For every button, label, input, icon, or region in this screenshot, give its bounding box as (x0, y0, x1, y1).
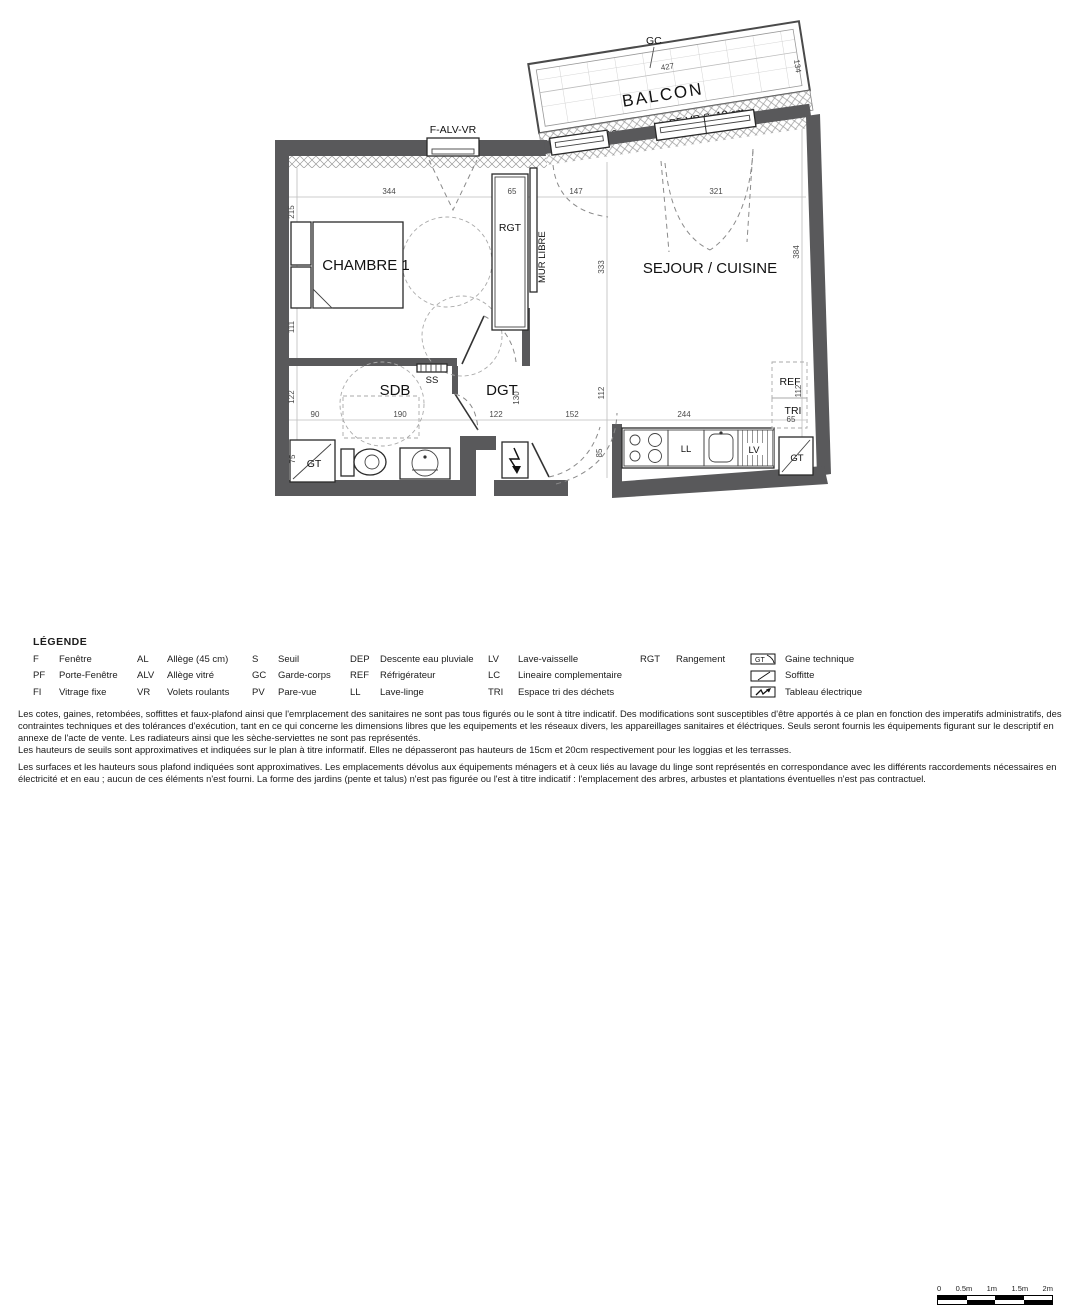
label-rgt: RGT (499, 222, 522, 234)
svg-text:122: 122 (287, 390, 296, 404)
towel-rail-ss (417, 364, 447, 372)
legend-abbr: S (252, 654, 278, 665)
disclaimer-paragraph-1: Les cotes, gaines, retombées, soffittes … (18, 708, 1072, 744)
window-f-alv-vr (427, 138, 479, 210)
svg-text:384: 384 (792, 245, 801, 259)
legend-abbr: FI (33, 687, 59, 698)
legend-item: REFRéfrigérateur (350, 668, 473, 685)
legend-label: Volets roulants (167, 687, 229, 698)
legend-label: Descente eau pluviale (380, 654, 473, 665)
sdb-sink (400, 448, 450, 479)
svg-text:111: 111 (287, 320, 296, 333)
room-label-sejour: SEJOUR / CUISINE (643, 260, 777, 277)
floorplan-page: { "plan": { "rooms": { "balcon": "BALCON… (0, 0, 1085, 800)
floor-plan: 427 134 BALCON PF-VR S=18 cm PF-VR S=18 … (0, 0, 1085, 634)
legend-abbr: LL (350, 687, 380, 698)
svg-text:112: 112 (794, 384, 803, 397)
svg-text:147: 147 (569, 187, 583, 196)
label-ll: LL (681, 444, 692, 455)
legend-item: ALVAllège vitré (137, 668, 229, 685)
legend-abbr: ALV (137, 670, 167, 681)
legend-column-symbols: GT Gaine technique Soffitte Tableau élec… (750, 651, 862, 701)
svg-text:333: 333 (597, 260, 606, 274)
scale-bar: 0 0.5m 1m 1.5m 2m (937, 1284, 1053, 1305)
gaine-technique-icon: GT (750, 653, 776, 665)
label-gt-right: GT (790, 453, 803, 464)
legend-label: Allège vitré (167, 670, 214, 681)
svg-text:321: 321 (709, 187, 723, 196)
svg-text:152: 152 (565, 410, 579, 419)
label-ss: SS (426, 375, 439, 386)
legend-abbr: GC (252, 670, 278, 681)
legend-label: Gaine technique (785, 654, 854, 665)
toilet (341, 449, 386, 476)
legend-label: Allège (45 cm) (167, 654, 228, 665)
legend-abbr: TRI (488, 687, 518, 698)
label-mur-libre: MUR LIBRE (537, 231, 548, 283)
legend-item: FFenêtre (33, 651, 118, 668)
label-gc: GC (646, 35, 662, 47)
legend-label: Fenêtre (59, 654, 92, 665)
label-f-alv-vr: F-ALV-VR (430, 124, 477, 136)
disclaimer-paragraph-3: Les surfaces et les hauteurs sous plafon… (18, 761, 1072, 785)
legend-abbr: PF (33, 670, 59, 681)
legend-label: Garde-corps (278, 670, 331, 681)
legend-abbr: LC (488, 670, 518, 681)
disclaimer: Les cotes, gaines, retombées, soffittes … (18, 708, 1072, 785)
soffitte-icon (750, 670, 776, 682)
legend-label: Réfrigérateur (380, 670, 435, 681)
legend-column-4: DEPDescente eau pluviale REFRéfrigérateu… (350, 651, 473, 701)
label-gt-left: GT (307, 458, 322, 470)
legend-column-2: ALAllège (45 cm) ALVAllège vitré VRVolet… (137, 651, 229, 701)
tableau-electrique-icon (750, 686, 776, 698)
legend-label: Rangement (676, 654, 725, 665)
electrical-panel (502, 442, 528, 478)
scale-tick: 1.5m (1011, 1284, 1028, 1293)
scale-bar-graphic (937, 1295, 1053, 1305)
legend-abbr: PV (252, 687, 278, 698)
legend-item: GCGarde-corps (252, 668, 331, 685)
legend: LÉGENDE FFenêtre PFPorte-Fenêtre FIVitra… (0, 636, 1085, 706)
legend-item-tableau-electrique: Tableau électrique (750, 684, 862, 701)
scale-tick: 0.5m (956, 1284, 973, 1293)
legend-abbr: LV (488, 654, 518, 665)
legend-abbr: REF (350, 670, 380, 681)
legend-item: LLLave-linge (350, 684, 473, 701)
svg-text:190: 190 (393, 410, 407, 419)
legend-column-1: FFenêtre PFPorte-Fenêtre FIVitrage fixe (33, 651, 118, 701)
legend-label: Vitrage fixe (59, 687, 106, 698)
svg-text:75: 75 (288, 454, 297, 463)
legend-abbr: VR (137, 687, 167, 698)
legend-label: Seuil (278, 654, 299, 665)
svg-text:85: 85 (595, 448, 604, 457)
svg-text:122: 122 (489, 410, 503, 419)
svg-text:90: 90 (311, 410, 320, 419)
legend-item: LCLineaire complementaire (488, 668, 622, 685)
legend-title: LÉGENDE (33, 636, 87, 648)
legend-item-gaine-technique: GT Gaine technique (750, 651, 862, 668)
legend-label: Lineaire complementaire (518, 670, 622, 681)
shower-outline (343, 396, 419, 438)
legend-abbr: AL (137, 654, 167, 665)
svg-text:65: 65 (787, 415, 796, 424)
legend-label: Tableau électrique (785, 687, 862, 698)
legend-label: Lave-linge (380, 687, 424, 698)
svg-text:130: 130 (512, 391, 521, 405)
disclaimer-paragraph-2: Les hauteurs de seuils sont approximativ… (18, 744, 1072, 756)
svg-text:65: 65 (508, 187, 517, 196)
legend-item-soffitte: Soffitte (750, 668, 862, 685)
legend-column-3: SSeuil GCGarde-corps PVPare-vue (252, 651, 331, 701)
legend-label: Espace tri des déchets (518, 687, 614, 698)
legend-label: Lave-vaisselle (518, 654, 578, 665)
legend-label: Soffitte (785, 670, 814, 681)
room-label-chambre: CHAMBRE 1 (322, 257, 410, 274)
svg-text:244: 244 (677, 410, 691, 419)
legend-abbr: RGT (640, 654, 676, 665)
legend-item: DEPDescente eau pluviale (350, 651, 473, 668)
legend-item: FIVitrage fixe (33, 684, 118, 701)
rgt-closet (492, 174, 528, 330)
legend-column-5: LVLave-vaisselle LCLineaire complementai… (488, 651, 622, 701)
legend-column-6: RGTRangement (640, 651, 725, 668)
legend-abbr: F (33, 654, 59, 665)
legend-item: RGTRangement (640, 651, 725, 668)
scale-bar-labels: 0 0.5m 1m 1.5m 2m (937, 1284, 1053, 1293)
legend-label: Pare-vue (278, 687, 317, 698)
svg-text:344: 344 (382, 187, 396, 196)
legend-item: VRVolets roulants (137, 684, 229, 701)
legend-item: PVPare-vue (252, 684, 331, 701)
svg-text:215: 215 (287, 205, 296, 219)
legend-item: TRIEspace tri des déchets (488, 684, 622, 701)
legend-label: Porte-Fenêtre (59, 670, 118, 681)
scale-tick: 1m (987, 1284, 997, 1293)
svg-text:112: 112 (597, 386, 606, 399)
room-label-sdb: SDB (380, 382, 411, 399)
legend-item: LVLave-vaisselle (488, 651, 622, 668)
legend-item: ALAllège (45 cm) (137, 651, 229, 668)
legend-item: PFPorte-Fenêtre (33, 668, 118, 685)
scale-tick: 2m (1043, 1284, 1053, 1293)
svg-text:GT: GT (755, 657, 765, 664)
legend-item: SSeuil (252, 651, 331, 668)
legend-abbr: DEP (350, 654, 380, 665)
label-lv: LV (749, 445, 761, 456)
scale-tick: 0 (937, 1284, 941, 1293)
